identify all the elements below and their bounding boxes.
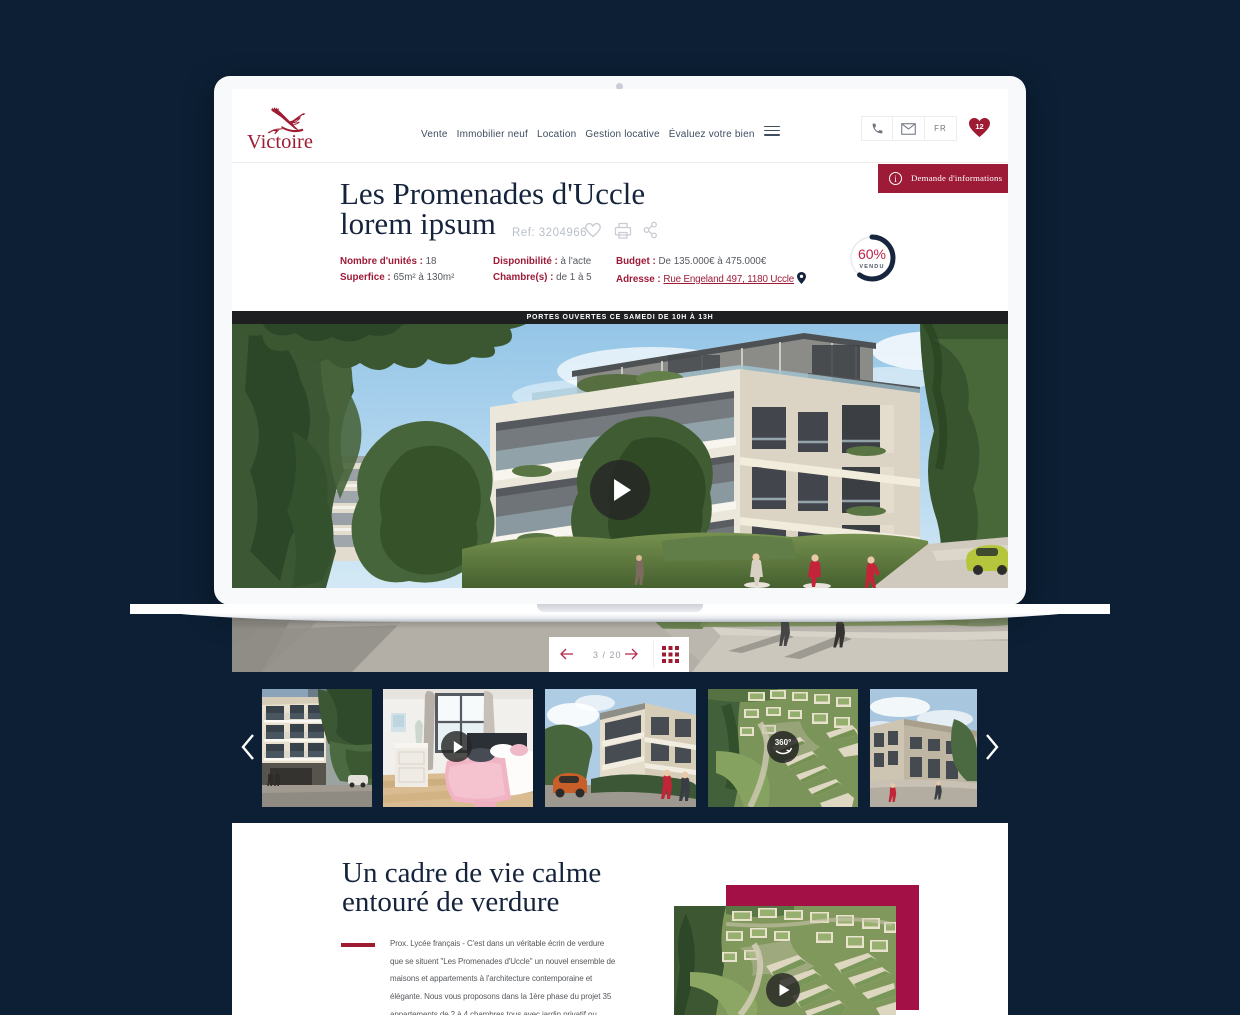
svg-text:360°: 360° — [775, 738, 792, 747]
svg-text:Victoire: Victoire — [247, 131, 313, 153]
